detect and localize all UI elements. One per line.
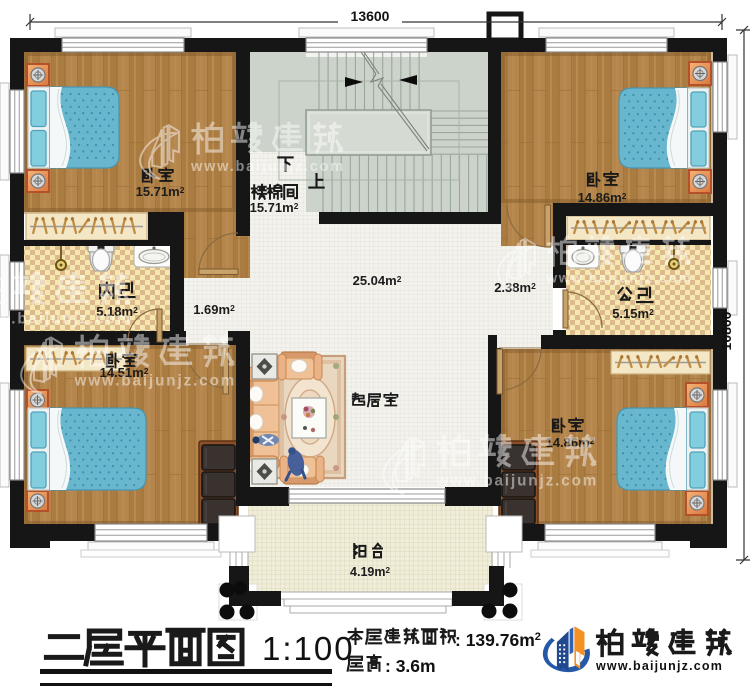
svg-text:2.38m2: 2.38m2 <box>494 280 536 295</box>
svg-text:www.baijunjz.com: www.baijunjz.com <box>436 473 599 490</box>
svg-text:1:100: 1:100 <box>262 630 355 667</box>
svg-text:5.15m2: 5.15m2 <box>612 306 654 321</box>
svg-text:13600: 13600 <box>351 8 390 24</box>
svg-text:1.69m2: 1.69m2 <box>193 302 235 317</box>
svg-text:: 3.6m: : 3.6m <box>385 656 436 676</box>
svg-text:www.baijunjz.com: www.baijunjz.com <box>0 311 132 328</box>
svg-text:15.71m2: 15.71m2 <box>250 200 299 215</box>
svg-text:14.86m2: 14.86m2 <box>578 190 627 205</box>
svg-text:15.71m2: 15.71m2 <box>136 184 185 199</box>
svg-text:: 139.76m2: : 139.76m2 <box>455 630 541 650</box>
svg-text:4.19m2: 4.19m2 <box>350 565 390 579</box>
svg-text:www.baijunjz.com: www.baijunjz.com <box>545 270 692 285</box>
svg-text:www.baijunjz.com: www.baijunjz.com <box>190 159 345 175</box>
svg-text:25.04m2: 25.04m2 <box>353 273 402 288</box>
svg-text:www.baijunjz.com: www.baijunjz.com <box>74 373 237 390</box>
svg-text:10800: 10800 <box>718 311 734 350</box>
svg-text:www.baijunjz.com: www.baijunjz.com <box>595 659 723 673</box>
